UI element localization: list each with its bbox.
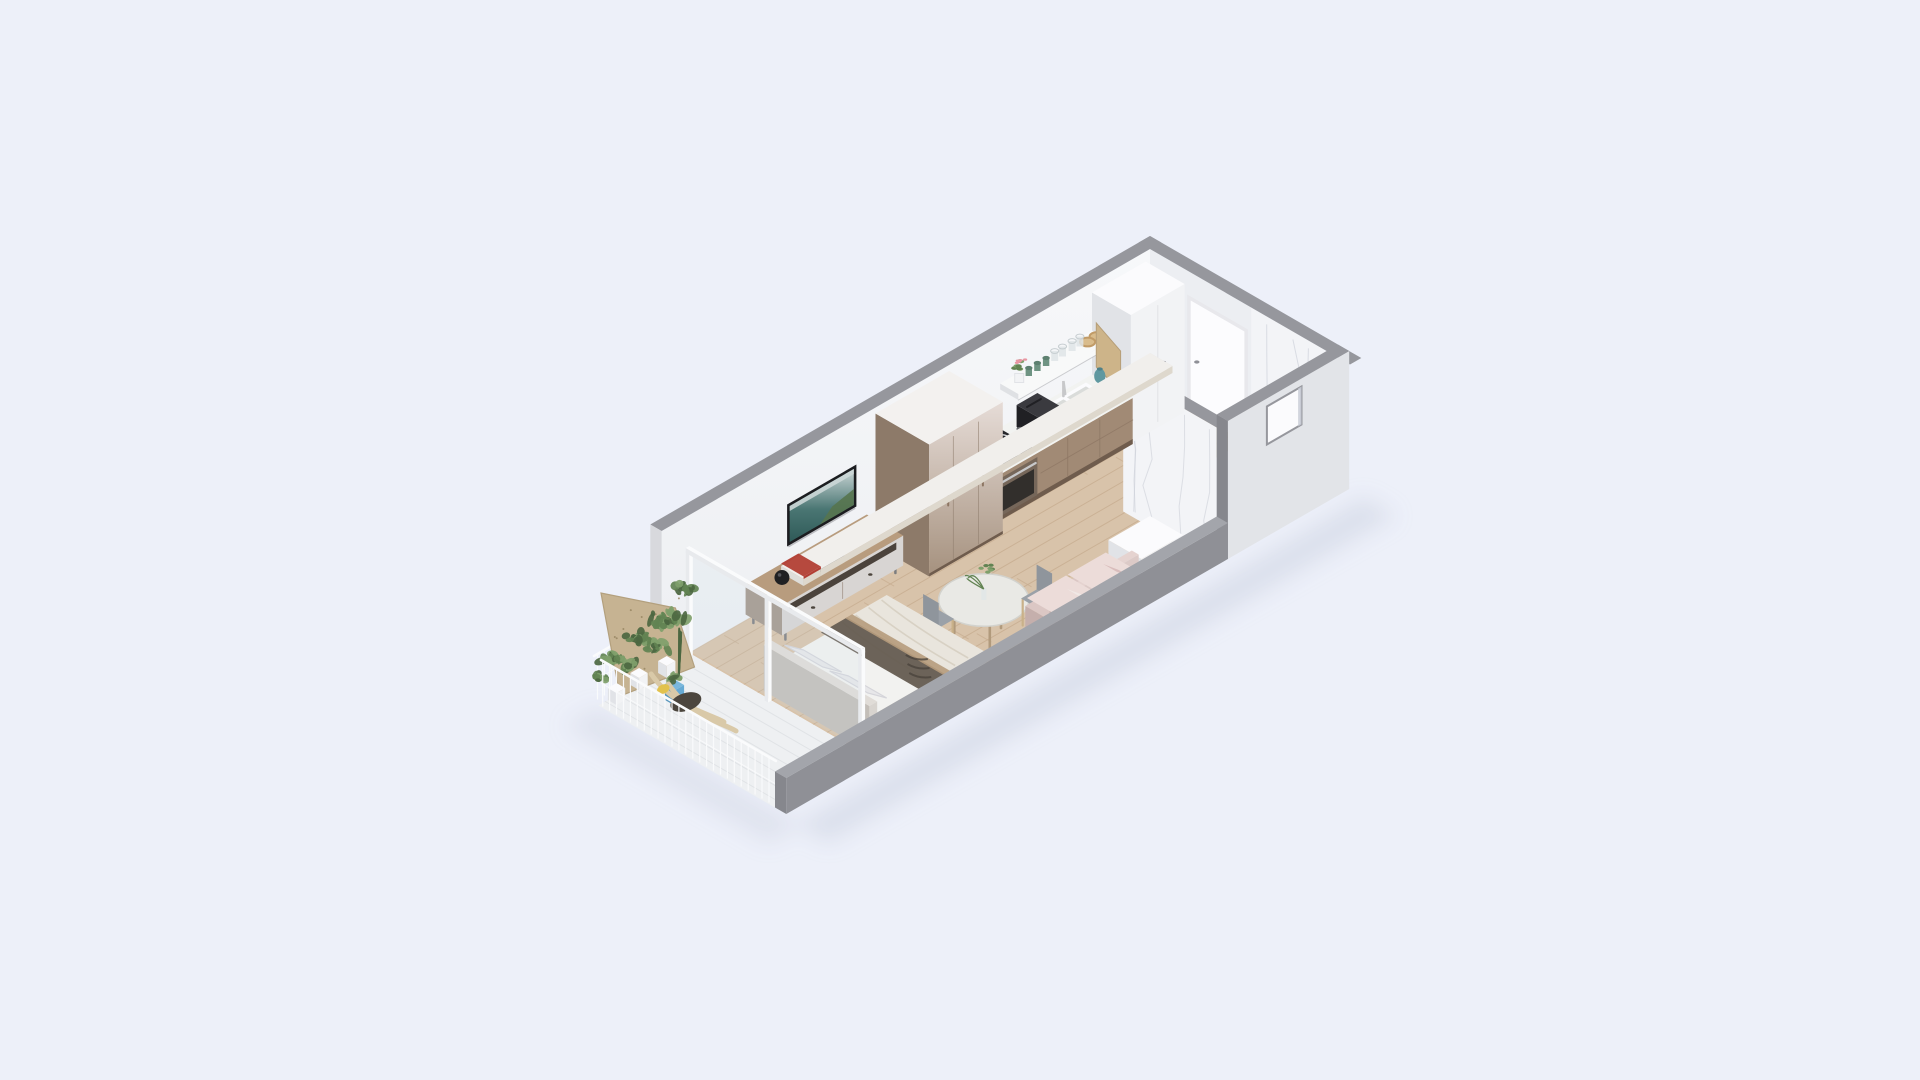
table-vase [981, 588, 986, 600]
door-handle [1194, 360, 1199, 363]
glass [1069, 341, 1076, 351]
glass [1076, 337, 1083, 347]
glass [1051, 351, 1058, 361]
speaker-vase [774, 570, 789, 585]
glass [1059, 347, 1066, 357]
flower [1015, 362, 1019, 364]
balcony-plant [591, 669, 610, 684]
flower [1023, 358, 1027, 360]
faucet [1063, 381, 1065, 396]
isometric-apartment-scene [0, 0, 1920, 1080]
flower [1016, 360, 1020, 362]
floor-plan-render [0, 0, 1920, 1080]
front-wall-band-end [775, 772, 786, 815]
